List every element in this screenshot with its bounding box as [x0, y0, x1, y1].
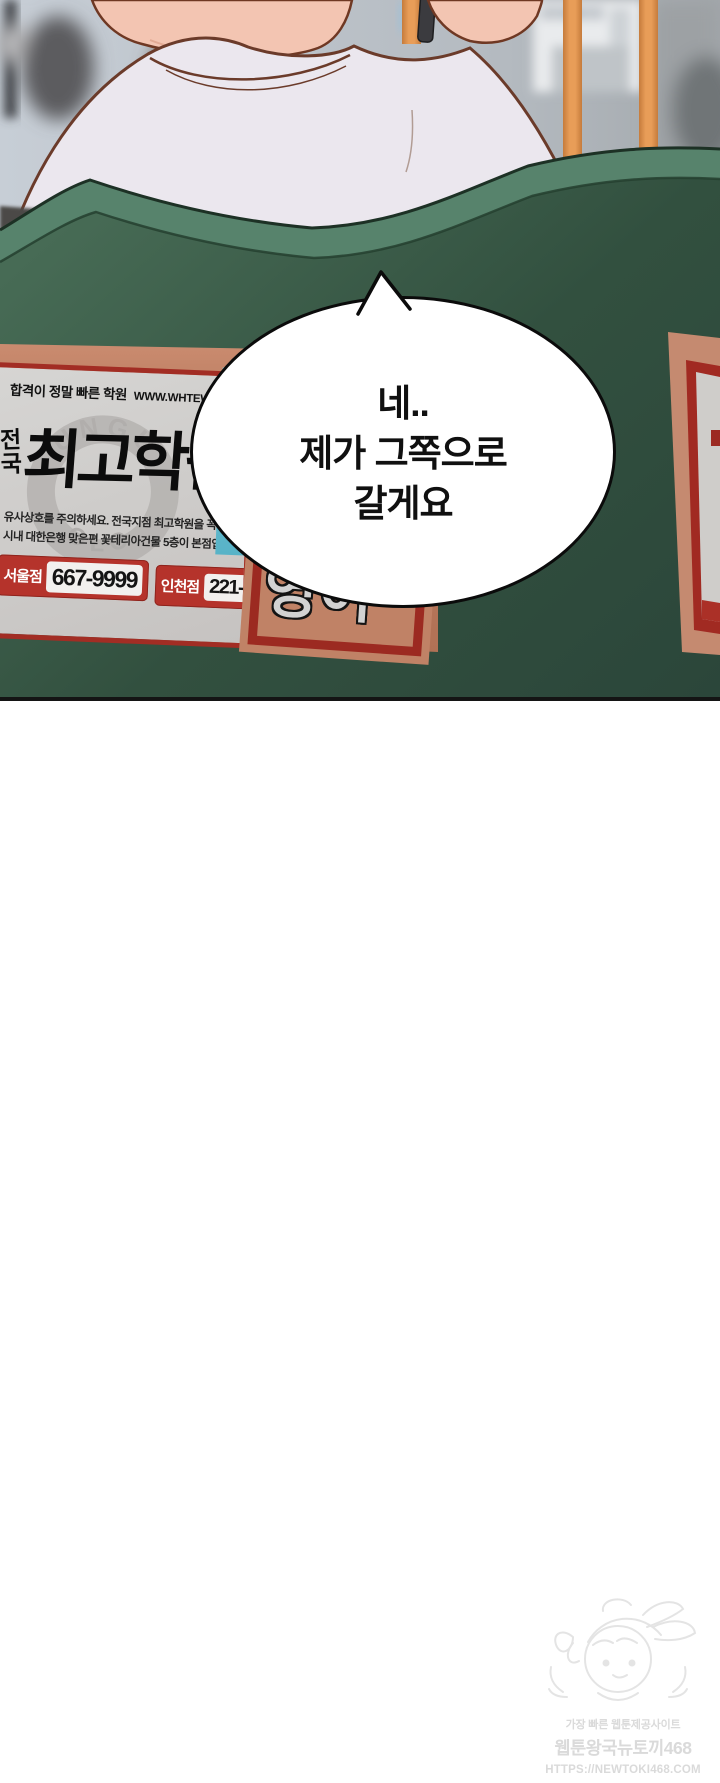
watermark-slogan: 가장 빠른 웹툰제공사이트 — [537, 1716, 709, 1732]
bubble-line-1: 네.. — [377, 379, 429, 429]
bubble-line-2: 제가 그쪽으로 — [299, 429, 507, 479]
blurred-right-wall — [652, 0, 720, 164]
bubble-line-3: 갈게요 — [353, 479, 452, 529]
bus-door — [533, 0, 643, 92]
watermark-url: HTTPS://NEWTOKI468.COM — [537, 1764, 709, 1776]
watermark-site-name: 웹툰왕국뉴토끼468 — [537, 1735, 709, 1760]
branch-phone: 667-9999 — [46, 561, 142, 596]
branch-name: 서울점 — [3, 565, 42, 588]
phone-box-seoul: 서울점 667-9999 — [0, 554, 149, 601]
comic-panel: 합격이 정말 빠른 학원WWW.WHTEWKOSI.COM UNGU OLO 전… — [0, 0, 720, 701]
webtoon-page: 합격이 정말 빠른 학원WWW.WHTEWKOSI.COM UNGU OLO 전… — [0, 0, 720, 1783]
poster-title-prefix: 전 국 — [0, 427, 22, 476]
site-watermark: 가장 빠른 웹툰제공사이트 웹툰왕국뉴토끼468 HTTPS://NEWTOKI… — [537, 1597, 709, 1776]
prefix-char-1: 전 — [0, 427, 22, 452]
watermark-mascot-illustration — [543, 1597, 703, 1709]
prefix-char-2: 국 — [0, 451, 22, 476]
speech-bubble-text: 네.. 제가 그쪽으로 갈게요 — [190, 300, 616, 608]
